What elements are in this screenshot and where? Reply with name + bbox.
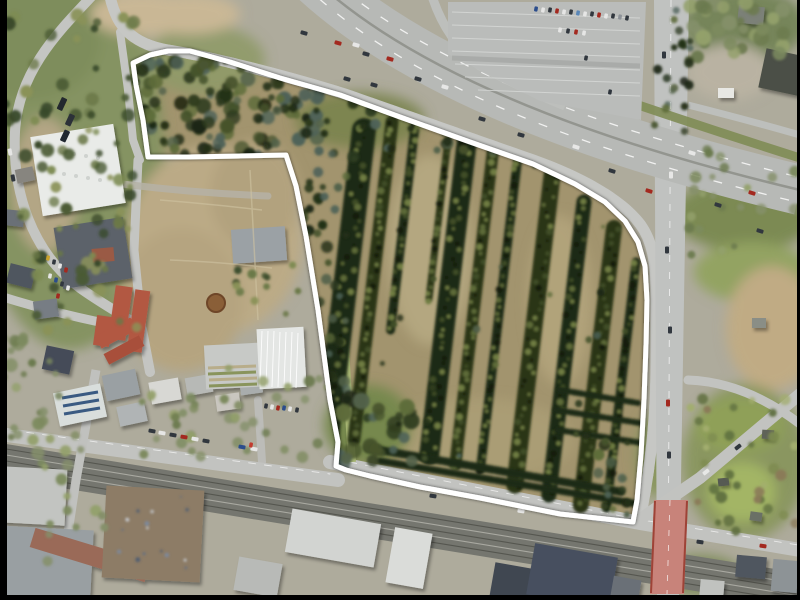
- tree: [127, 16, 140, 29]
- nursery-row-texture: [378, 199, 382, 203]
- nursery-row-texture: [479, 252, 483, 256]
- tree: [262, 429, 270, 437]
- tree: [60, 203, 72, 215]
- tree: [124, 189, 136, 201]
- nursery-row-texture: [630, 316, 634, 320]
- tree: [651, 121, 658, 128]
- tree: [763, 504, 773, 514]
- tree: [253, 113, 263, 123]
- tree: [47, 166, 56, 175]
- nursery-row-texture: [488, 376, 492, 380]
- tree: [159, 87, 167, 95]
- nursery-row-texture: [362, 136, 365, 139]
- tree: [334, 183, 343, 192]
- nursery-row-texture: [440, 369, 445, 374]
- tree: [722, 15, 737, 30]
- tree: [247, 269, 257, 279]
- tree: [687, 251, 695, 259]
- nursery-row-texture: [488, 397, 492, 401]
- tree: [113, 174, 125, 186]
- nursery-row-texture: [374, 268, 379, 273]
- tree: [216, 133, 226, 143]
- tree: [143, 552, 146, 555]
- nursery-row-texture: [498, 306, 501, 309]
- nursery-row-texture: [519, 462, 525, 468]
- nursery-row-texture: [386, 168, 392, 174]
- tree: [92, 214, 104, 226]
- tree: [284, 383, 292, 391]
- nursery-row-texture: [495, 340, 501, 346]
- nursery-row-texture: [485, 410, 488, 413]
- nursery-row-texture: [597, 355, 600, 358]
- nursery-row-texture: [619, 385, 625, 391]
- nursery-row-texture: [490, 169, 497, 176]
- tree: [312, 94, 323, 105]
- nursery-row-texture: [511, 182, 518, 189]
- nursery-row-texture: [432, 391, 436, 395]
- tree: [127, 184, 133, 190]
- tree: [697, 394, 708, 405]
- tree: [276, 94, 285, 103]
- tree: [671, 44, 677, 50]
- nursery-row-texture: [463, 392, 466, 395]
- nursery-row-texture: [439, 211, 443, 215]
- nursery-row-texture: [447, 315, 451, 319]
- nursery-row-texture: [470, 285, 477, 292]
- nursery-row-texture: [623, 342, 629, 348]
- tree: [754, 496, 761, 503]
- tree: [95, 162, 107, 174]
- nursery-row-texture: [605, 266, 611, 272]
- nursery-row-texture: [571, 322, 577, 328]
- border-left: [0, 0, 7, 600]
- tree: [196, 451, 206, 461]
- tree: [280, 445, 288, 453]
- nursery-row-texture: [504, 237, 510, 243]
- tree: [321, 274, 332, 285]
- nursery-row-texture: [438, 190, 443, 195]
- nursery-row-texture: [550, 450, 557, 457]
- tree: [234, 266, 242, 274]
- tree: [718, 246, 726, 254]
- tree: [56, 226, 62, 232]
- nursery-row-texture: [354, 423, 359, 428]
- tree: [700, 191, 706, 197]
- nursery-row-texture: [470, 300, 473, 303]
- nursery-row-texture: [382, 181, 388, 187]
- nursery-row-texture: [365, 295, 371, 301]
- tree: [387, 144, 395, 152]
- tree: [603, 484, 610, 491]
- nursery-row-texture: [613, 253, 617, 257]
- nursery-row-texture: [436, 217, 440, 221]
- tree: [233, 97, 241, 105]
- tree: [395, 412, 403, 420]
- tree: [136, 509, 139, 512]
- nursery-row-texture: [520, 414, 524, 418]
- tree: [272, 392, 282, 402]
- nursery-row-texture: [360, 174, 367, 181]
- nursery-row-texture: [552, 431, 555, 434]
- tree: [94, 260, 101, 267]
- vehicle: [662, 52, 666, 59]
- building: [749, 511, 762, 522]
- nursery-row-texture: [630, 295, 636, 301]
- tree: [121, 529, 123, 531]
- nursery-row-texture: [390, 321, 397, 328]
- tree: [156, 57, 164, 65]
- nursery-row-texture: [480, 432, 484, 436]
- nursery-row-texture: [400, 244, 403, 247]
- nursery-row-texture: [348, 289, 354, 295]
- tree: [314, 229, 322, 237]
- nursery-row-texture: [473, 317, 478, 322]
- tree: [289, 262, 296, 269]
- nursery-row-texture: [397, 227, 404, 234]
- nursery-row-texture: [461, 181, 466, 186]
- nursery-row-texture: [586, 452, 591, 457]
- nursery-row-texture: [403, 214, 408, 219]
- nursery-row-texture: [365, 332, 369, 336]
- tree: [724, 37, 737, 50]
- nursery-row-texture: [394, 308, 398, 312]
- tree: [185, 566, 188, 569]
- nursery-row-texture: [570, 278, 574, 282]
- tree: [406, 455, 418, 467]
- tree: [399, 399, 415, 415]
- building: [752, 318, 766, 328]
- building: [231, 226, 287, 264]
- nursery-row-texture: [465, 365, 468, 368]
- nursery-row-texture: [389, 315, 395, 321]
- nursery-row-texture: [456, 440, 460, 444]
- nursery-row-texture: [548, 458, 554, 464]
- nursery-row-texture: [578, 501, 583, 506]
- tree: [184, 559, 187, 562]
- nursery-row-texture: [522, 379, 527, 384]
- tree: [316, 119, 325, 128]
- building: [771, 559, 800, 593]
- tree: [20, 85, 33, 98]
- tree: [593, 468, 603, 478]
- nursery-row-texture: [364, 337, 368, 341]
- tree: [31, 446, 44, 459]
- tree: [403, 413, 420, 430]
- nursery-row-texture: [482, 454, 486, 458]
- tree: [135, 63, 149, 77]
- nursery-row-texture: [353, 417, 356, 420]
- nursery-row-texture: [456, 215, 462, 221]
- tree: [225, 76, 238, 89]
- nursery-row-texture: [354, 204, 361, 211]
- tree: [117, 550, 121, 554]
- tree: [96, 150, 103, 157]
- nursery-row-texture: [496, 286, 503, 293]
- nursery-row-texture: [630, 287, 634, 291]
- tree: [118, 12, 129, 23]
- nursery-row-texture: [351, 267, 357, 273]
- tree: [42, 464, 49, 471]
- nursery-row-texture: [482, 449, 485, 452]
- tree: [320, 184, 326, 190]
- nursery-row-texture: [615, 227, 620, 232]
- nursery-row-texture: [464, 351, 468, 355]
- tree: [171, 56, 184, 69]
- tree: [397, 315, 404, 322]
- tree: [126, 75, 133, 82]
- tree: [225, 365, 233, 373]
- nursery-row-texture: [525, 349, 531, 355]
- tree: [73, 524, 80, 531]
- nursery-row-texture: [378, 187, 385, 194]
- tree: [716, 152, 725, 161]
- tree: [46, 358, 52, 364]
- nursery-row-texture: [353, 430, 359, 436]
- nursery-row-texture: [590, 425, 595, 430]
- tree: [330, 281, 340, 291]
- tree: [367, 455, 379, 467]
- nursery-row-texture: [526, 322, 533, 329]
- nursery-row-texture: [629, 303, 632, 306]
- tree: [318, 220, 327, 229]
- nursery-row-texture: [492, 346, 496, 350]
- tree: [203, 144, 213, 154]
- tree: [37, 162, 48, 173]
- nursery-row-texture: [453, 198, 458, 203]
- tree: [422, 455, 428, 461]
- tree: [203, 116, 215, 128]
- tree: [321, 241, 333, 253]
- nursery-row-texture: [357, 390, 360, 393]
- nursery-row-texture: [353, 410, 358, 415]
- tree: [171, 413, 180, 422]
- tree: [331, 205, 340, 214]
- nursery-row-texture: [511, 166, 516, 171]
- nursery-row-texture: [393, 299, 396, 302]
- tree: [99, 229, 109, 239]
- nursery-row-texture: [366, 288, 372, 294]
- nursery-row-texture: [467, 322, 471, 326]
- nursery-row-texture: [412, 138, 418, 144]
- nursery-row-texture: [483, 424, 487, 428]
- tree: [41, 144, 54, 157]
- nursery-row-texture: [484, 405, 487, 408]
- tree: [43, 556, 53, 566]
- tree: [583, 433, 590, 440]
- tree: [160, 550, 163, 553]
- tree: [773, 46, 787, 60]
- tree: [380, 361, 385, 366]
- tree: [756, 23, 769, 36]
- tree: [769, 409, 777, 417]
- tree: [662, 104, 671, 113]
- tree: [114, 140, 120, 146]
- nursery-row-texture: [450, 218, 456, 224]
- tree: [313, 167, 323, 177]
- tree: [305, 119, 314, 128]
- nursery-row-texture: [377, 241, 380, 244]
- tree: [85, 127, 92, 134]
- tree: [328, 314, 337, 323]
- tree: [715, 519, 722, 526]
- vehicle: [667, 452, 671, 459]
- nursery-row-texture: [432, 246, 438, 252]
- nursery-row-texture: [376, 203, 383, 210]
- tree: [624, 511, 630, 517]
- tree: [179, 409, 187, 417]
- nursery-row-texture: [434, 423, 441, 430]
- tree: [733, 482, 741, 490]
- tree: [748, 442, 754, 448]
- nursery-row-texture: [609, 233, 614, 238]
- nursery-row-texture: [511, 211, 516, 216]
- vehicle: [666, 400, 670, 407]
- nursery-row-texture: [349, 192, 353, 196]
- nursery-row-texture: [453, 434, 459, 440]
- nursery-row-texture: [393, 269, 397, 273]
- tree: [710, 193, 716, 199]
- vehicle: [668, 327, 672, 334]
- tree: [60, 445, 71, 456]
- tree: [63, 493, 70, 500]
- tree: [325, 259, 332, 266]
- tree: [684, 58, 694, 68]
- aerial-photograph: [0, 0, 800, 600]
- nursery-row-texture: [515, 433, 518, 436]
- tree: [473, 325, 481, 333]
- tree: [370, 119, 381, 130]
- nursery-row-texture: [433, 446, 437, 450]
- tree: [696, 30, 712, 46]
- vehicle: [669, 172, 673, 179]
- tree: [779, 394, 790, 405]
- nursery-row-texture: [631, 266, 637, 272]
- tree: [93, 284, 106, 297]
- tree: [51, 182, 62, 193]
- nursery-row-texture: [552, 196, 555, 199]
- nursery-row-texture: [521, 426, 525, 430]
- tree: [39, 108, 50, 119]
- tree: [304, 376, 315, 387]
- tree: [756, 204, 767, 215]
- tree: [701, 459, 709, 467]
- tree: [408, 125, 414, 131]
- nursery-row-texture: [581, 459, 584, 462]
- tree: [389, 446, 397, 454]
- nursery-row-texture: [488, 190, 492, 194]
- nursery-row-texture: [486, 420, 490, 424]
- nursery-row-texture: [458, 420, 463, 425]
- tree: [52, 371, 58, 377]
- tree: [157, 64, 171, 78]
- nursery-row-texture: [332, 383, 338, 389]
- nursery-row-texture: [552, 436, 556, 440]
- tree: [297, 451, 309, 463]
- nursery-row-texture: [512, 175, 516, 179]
- nursery-row-texture: [366, 317, 371, 322]
- nursery-row-texture: [540, 301, 544, 305]
- nursery-row-texture: [589, 445, 593, 449]
- nursery-row-texture: [573, 260, 576, 263]
- tree: [71, 431, 80, 440]
- nursery-row-texture: [630, 311, 633, 314]
- nursery-row-texture: [403, 222, 407, 226]
- tree: [63, 148, 75, 160]
- tree: [547, 292, 553, 298]
- tree: [695, 0, 709, 13]
- nursery-row-texture: [445, 276, 449, 280]
- nursery-row-texture: [443, 306, 447, 310]
- tree: [597, 289, 604, 296]
- nursery-row-texture: [496, 298, 501, 303]
- nursery-row-texture: [605, 311, 610, 316]
- tree: [619, 486, 626, 493]
- tree: [336, 293, 343, 300]
- tree: [234, 401, 243, 410]
- tree: [325, 333, 335, 343]
- tree: [305, 184, 314, 193]
- nursery-row-texture: [567, 357, 570, 360]
- nursery-row-texture: [368, 312, 373, 317]
- nursery-row-texture: [521, 385, 524, 388]
- nursery-row-texture: [406, 170, 413, 177]
- nursery-row-texture: [441, 341, 445, 345]
- nursery-row-texture: [446, 298, 449, 301]
- nursery-row-texture: [447, 236, 453, 242]
- nursery-row-texture: [359, 383, 364, 388]
- nursery-row-texture: [388, 127, 393, 132]
- tree: [321, 130, 329, 138]
- tree: [220, 395, 229, 404]
- tree: [768, 431, 779, 442]
- nursery-row-texture: [476, 244, 482, 250]
- nursery-row-texture: [429, 269, 434, 274]
- building: [718, 88, 734, 98]
- nursery-row-texture: [620, 373, 624, 377]
- nursery-row-texture: [405, 195, 409, 199]
- tree: [260, 104, 269, 113]
- tree: [730, 404, 738, 412]
- nursery-row-texture: [546, 239, 549, 242]
- nursery-row-texture: [507, 224, 514, 231]
- nursery-row-texture: [609, 241, 614, 246]
- nursery-row-texture: [450, 289, 457, 296]
- nursery-row-texture: [592, 401, 597, 406]
- nursery-row-texture: [482, 194, 487, 199]
- tree: [89, 252, 96, 259]
- tree: [343, 232, 349, 238]
- nursery-row-texture: [462, 192, 465, 195]
- storage-tank: [207, 294, 225, 312]
- tree: [687, 45, 693, 51]
- nursery-row-texture: [457, 247, 462, 252]
- tree: [113, 217, 125, 229]
- nursery-row-texture: [504, 253, 509, 258]
- tree: [46, 435, 55, 444]
- nursery-row-texture: [545, 188, 548, 191]
- tree: [45, 29, 57, 41]
- nursery-row-texture: [576, 264, 580, 268]
- tree: [370, 443, 383, 456]
- tree: [737, 204, 744, 211]
- nursery-row-texture: [401, 208, 408, 215]
- nursery-row-texture: [353, 226, 358, 231]
- nursery-row-texture: [501, 274, 505, 278]
- tree: [150, 510, 154, 514]
- tree: [575, 400, 582, 407]
- tree: [28, 59, 39, 70]
- nursery-row-texture: [592, 384, 596, 388]
